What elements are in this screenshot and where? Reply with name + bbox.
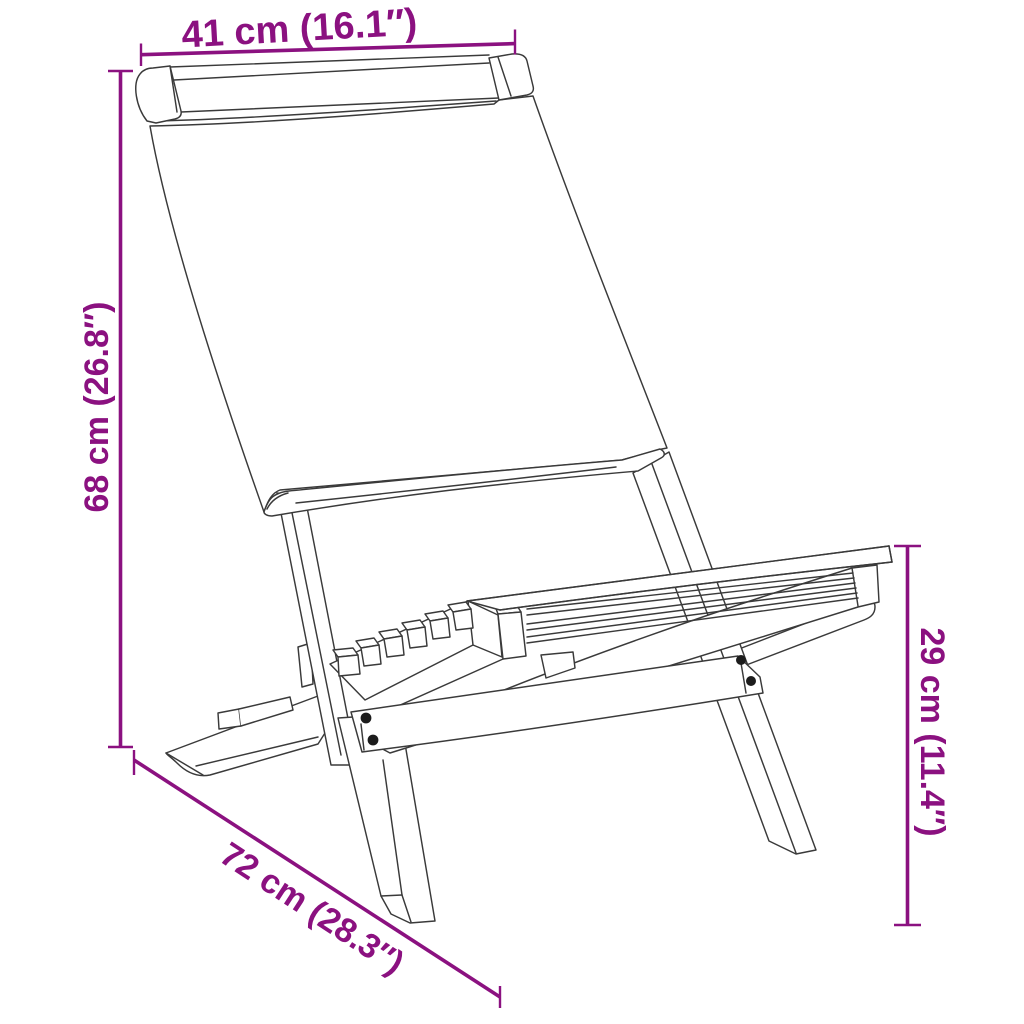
svg-text:29 cm (11.4″): 29 cm (11.4″) [913,627,951,836]
svg-text:68 cm (26.8″): 68 cm (26.8″) [78,302,116,513]
